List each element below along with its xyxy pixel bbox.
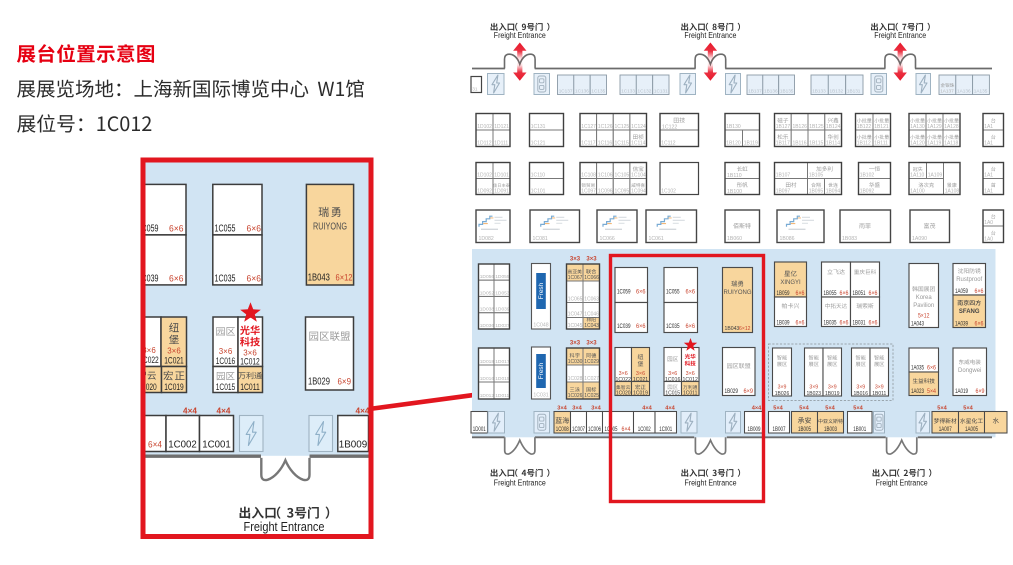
svg-text:1C136: 1C136 [575,88,589,93]
svg-text:1C021: 1C021 [164,355,184,366]
svg-text:1C101: 1C101 [531,188,546,194]
svg-text:1B121: 1B121 [874,124,889,130]
svg-text:1B116: 1B116 [792,140,806,146]
svg-text:5×4: 5×4 [825,406,835,412]
svg-text:1C002: 1C002 [168,439,197,451]
svg-text:6×6: 6×6 [169,274,184,284]
svg-text:1B026: 1B026 [775,391,790,397]
svg-text:1B111: 1B111 [874,140,888,146]
svg-text:31: 31 [472,86,478,92]
svg-text:1B132: 1B132 [830,88,844,93]
svg-text:1B003: 1B003 [824,426,837,433]
svg-text:1A007: 1A007 [939,426,952,433]
svg-text:1D082: 1D082 [479,236,494,242]
svg-text:1C127: 1C127 [581,124,596,130]
svg-text:1D053: 1D053 [495,290,510,296]
svg-text:5×4: 5×4 [963,406,973,412]
svg-text:1B136: 1B136 [764,88,778,93]
svg-text:3×3: 3×3 [586,257,597,263]
svg-text:6×6: 6×6 [975,322,985,328]
svg-text:Freight Entrance: Freight Entrance [244,520,325,534]
svg-text:1C027: 1C027 [584,376,599,382]
svg-text:1C121: 1C121 [531,140,546,146]
svg-text:6×6: 6×6 [869,291,879,297]
svg-text:1C015: 1C015 [216,381,236,392]
svg-text:3×9: 3×9 [778,385,787,391]
svg-text:1A039: 1A039 [955,321,968,328]
svg-text:1C102: 1C102 [661,188,676,194]
svg-text:Korea: Korea [916,295,933,301]
svg-text:6×9: 6×9 [976,389,986,395]
svg-text:1C002: 1C002 [638,426,651,433]
svg-text:3×4: 3×4 [557,406,567,412]
svg-text:1B055: 1B055 [824,290,837,297]
svg-text:1B124: 1B124 [826,124,841,130]
svg-text:6×6: 6×6 [975,289,985,295]
svg-text:6×6: 6×6 [169,224,184,234]
svg-text:1B016: 1B016 [854,391,869,397]
svg-text:1B137: 1B137 [748,88,762,93]
svg-text:1C006: 1C006 [588,426,601,433]
svg-text:1D001: 1D001 [473,426,486,433]
svg-text:Dongwei: Dongwei [958,368,981,374]
svg-text:1D037: 1D037 [495,323,510,329]
svg-text:1B043: 1B043 [308,273,330,284]
svg-text:1B112: 1B112 [857,140,871,146]
svg-text:1D121: 1D121 [494,124,509,130]
svg-text:1B105: 1B105 [809,172,824,178]
svg-text:1C125: 1C125 [614,124,629,130]
svg-text:1C067: 1C067 [568,275,583,281]
svg-text:1C115: 1C115 [614,140,629,146]
svg-text:1B005: 1B005 [798,426,811,433]
svg-text:6×12: 6×12 [739,326,751,332]
svg-text:1C104: 1C104 [631,172,646,178]
svg-text:1B086: 1B086 [780,236,795,242]
svg-text:RUIYONG: RUIYONG [723,290,751,296]
svg-text:1B029: 1B029 [308,377,330,388]
svg-text:1C047: 1C047 [568,311,583,317]
svg-text:6×9: 6×9 [744,388,754,395]
svg-text:5×4: 5×4 [937,406,947,412]
svg-text:RUIYONG: RUIYONG [313,222,347,233]
svg-text:1D052: 1D052 [480,290,495,296]
svg-text:1A129: 1A129 [927,124,942,130]
svg-text:Pavilion: Pavilion [913,303,934,309]
svg-text:6×6: 6×6 [869,321,879,327]
svg-text:Freight Entrance: Freight Entrance [684,31,736,40]
svg-text:1C132: 1C132 [638,88,652,93]
svg-text:1B115: 1B115 [809,140,823,146]
svg-text:1D055: 1D055 [495,274,510,280]
svg-text:3×4: 3×4 [572,406,582,412]
svg-text:1A128: 1A128 [944,124,959,130]
svg-text:1B083: 1B083 [842,236,857,242]
svg-text:1B019: 1B019 [825,391,840,397]
svg-text:1C031: 1C031 [533,393,548,399]
svg-text:1C133: 1C133 [621,88,635,93]
svg-text:1C011: 1C011 [240,381,260,392]
svg-text:6×6: 6×6 [686,323,696,330]
svg-text:1D092: 1D092 [477,188,492,194]
svg-text:4×4: 4×4 [356,407,370,416]
svg-text:6×6: 6×6 [840,321,850,327]
svg-text:1C112: 1C112 [661,140,676,146]
svg-text:1D112: 1D112 [477,140,492,146]
svg-text:1D012: 1D012 [480,393,495,399]
svg-text:5×4: 5×4 [799,406,809,412]
svg-text:1A1: 1A1 [984,124,993,130]
svg-text:1C019: 1C019 [633,391,648,397]
svg-text:1B117: 1B117 [776,140,790,146]
svg-text:Fresh: Fresh [538,282,545,299]
svg-text:1C001: 1C001 [202,439,231,451]
svg-text:1B092: 1B092 [860,188,875,194]
svg-text:1B023: 1B023 [807,391,822,397]
svg-text:6×4: 6×4 [148,440,162,450]
svg-text:1C095: 1C095 [614,188,629,194]
svg-text:1B131: 1B131 [847,88,861,93]
svg-text:1B102: 1B102 [860,172,875,178]
svg-text:1B009: 1B009 [748,426,761,433]
svg-text:1B120: 1B120 [726,140,741,146]
svg-text:1D056: 1D056 [480,274,495,280]
svg-text:1C081: 1C081 [533,236,548,242]
svg-text:1C028: 1C028 [568,376,583,382]
svg-text:1A1: 1A1 [984,188,993,194]
svg-text:1C126: 1C126 [598,124,613,130]
svg-text:1C135: 1C135 [591,88,605,93]
svg-text:1B059: 1B059 [777,290,790,297]
svg-text:1B001: 1B001 [853,426,866,433]
svg-text:1A005: 1A005 [965,426,978,433]
svg-text:6×6: 6×6 [796,321,806,327]
svg-text:4×4: 4×4 [752,406,762,412]
svg-text:1A136: 1A136 [957,88,971,93]
svg-text:1C137: 1C137 [559,88,573,93]
svg-text:Freight Entrance: Freight Entrance [685,479,737,488]
svg-text:1D039: 1D039 [495,307,510,313]
svg-text:5×12: 5×12 [918,314,930,320]
svg-text:1B122: 1B122 [857,124,872,130]
svg-text:1A090: 1A090 [912,236,927,242]
svg-text:1B126: 1B126 [792,124,807,130]
svg-text:3×3: 3×3 [570,341,581,347]
svg-text:1B011: 1B011 [872,391,886,397]
svg-text:1C015: 1C015 [665,391,680,397]
svg-text:1B130: 1B130 [726,124,741,130]
svg-text:1C055: 1C055 [215,224,236,235]
svg-text:6×6: 6×6 [686,289,696,296]
svg-text:1C026: 1C026 [568,393,583,399]
svg-text:1B043: 1B043 [725,326,740,332]
svg-text:1D036: 1D036 [480,323,495,329]
svg-text:1C012: 1C012 [240,356,260,367]
svg-text:1C097: 1C097 [581,188,596,194]
svg-text:4×4: 4×4 [183,407,197,416]
svg-text:1A1: 1A1 [984,172,993,178]
svg-text:1C061: 1C061 [649,236,664,242]
svg-text:1D015: 1D015 [495,376,510,382]
svg-text:1B097: 1B097 [776,188,791,194]
svg-text:1A023: 1A023 [911,388,924,395]
svg-text:Rustproof: Rustproof [956,277,982,283]
svg-text:1C131: 1C131 [654,88,668,93]
svg-text:1D018: 1D018 [480,359,495,365]
svg-text:1B060: 1B060 [727,236,742,242]
svg-text:1B031: 1B031 [853,320,866,327]
svg-text:1C065: 1C065 [568,296,583,302]
svg-text:1A137: 1A137 [940,88,954,93]
svg-text:1B094: 1B094 [826,188,841,194]
svg-text:1C131: 1C131 [531,124,546,130]
svg-text:1C029: 1C029 [584,359,599,365]
svg-text:1D101: 1D101 [494,172,509,178]
svg-text:1C008: 1C008 [556,426,569,433]
svg-text:3×9: 3×9 [875,385,884,391]
svg-text:1C055: 1C055 [666,289,680,296]
svg-text:1A135: 1A135 [974,88,988,93]
svg-text:1C066: 1C066 [584,275,599,281]
svg-text:1C001: 1C001 [659,426,672,433]
svg-text:1C110: 1C110 [531,172,546,178]
svg-text:1A059: 1A059 [955,288,968,295]
svg-text:1A035: 1A035 [911,365,924,372]
svg-text:1C030: 1C030 [568,359,583,365]
svg-text:6×6: 6×6 [247,274,262,284]
svg-text:6×6: 6×6 [840,291,850,297]
svg-text:4×4: 4×4 [217,407,231,416]
svg-text:1C106: 1C106 [598,172,613,178]
svg-text:1C096: 1C096 [598,188,613,194]
svg-text:1C035: 1C035 [215,274,236,285]
svg-text:SFANG: SFANG [959,309,980,315]
svg-text:1A118: 1A118 [944,140,958,146]
svg-text:1A110: 1A110 [910,172,924,178]
svg-text:1C025: 1C025 [584,393,599,399]
svg-text:1C124: 1C124 [631,124,646,130]
svg-text:1D011: 1D011 [495,393,509,399]
svg-text:XINGYI: XINGYI [780,280,801,286]
svg-text:3×4: 3×4 [591,406,601,412]
svg-text:Freight Entrance: Freight Entrance [874,31,926,40]
svg-text:1C043: 1C043 [584,323,599,329]
svg-text:1A043: 1A043 [911,321,924,328]
svg-text:3×9: 3×9 [809,385,818,391]
svg-text:3×3: 3×3 [586,341,597,347]
svg-text:1A0: 1A0 [984,220,993,226]
svg-text:1B035: 1B035 [824,320,837,327]
svg-text:1B127: 1B127 [776,124,791,130]
svg-text:3×9: 3×9 [856,385,865,391]
svg-text:4×4: 4×4 [642,406,652,412]
svg-text:1C108: 1C108 [581,172,596,178]
svg-text:5×4: 5×4 [927,389,937,395]
svg-text:1B125: 1B125 [809,124,824,130]
svg-text:1A0: 1A0 [984,236,993,242]
svg-text:Freight Entrance: Freight Entrance [876,479,928,488]
svg-text:1A019: 1A019 [955,388,968,395]
svg-text:3×9: 3×9 [828,385,837,391]
svg-text:6×9: 6×9 [338,377,352,387]
svg-text:1B009: 1B009 [339,439,368,451]
svg-text:1C019: 1C019 [164,381,184,392]
svg-text:1C116: 1C116 [598,140,613,146]
svg-text:1A109: 1A109 [928,172,943,178]
svg-text:1C007: 1C007 [572,426,585,433]
svg-text:1C035: 1C035 [666,323,680,330]
svg-text:1C114: 1C114 [631,140,646,146]
svg-text:6×6: 6×6 [927,366,937,372]
svg-text:6×6: 6×6 [247,224,262,234]
svg-text:1B135: 1B135 [780,88,794,93]
svg-text:Fresh: Fresh [538,362,545,379]
svg-text:1D038: 1D038 [480,307,495,313]
svg-text:Freight Entrance: Freight Entrance [494,479,546,488]
svg-text:1C117: 1C117 [581,140,596,146]
svg-text:1B107: 1B107 [776,172,791,178]
svg-text:1A119: 1A119 [927,140,941,146]
svg-text:Freight Entrance: Freight Entrance [494,31,546,40]
svg-text:5×4: 5×4 [773,406,783,412]
svg-text:1D091: 1D091 [494,188,509,194]
svg-text:1C059: 1C059 [617,289,631,296]
svg-text:1A120: 1A120 [910,140,925,146]
svg-text:1C105: 1C105 [614,172,629,178]
svg-text:6×6: 6×6 [796,291,806,297]
svg-text:1B007: 1B007 [773,426,786,433]
svg-text:1B114: 1B114 [826,140,840,146]
svg-text:5×4: 5×4 [853,406,863,412]
svg-text:1D016: 1D016 [480,376,495,382]
svg-text:1B095: 1B095 [809,188,824,194]
svg-text:6×4: 6×4 [622,426,631,433]
svg-text:1C039: 1C039 [617,323,631,330]
svg-text:1D017: 1D017 [495,359,510,365]
svg-text:6×6: 6×6 [636,323,646,330]
svg-text:1D102: 1D102 [477,172,492,178]
svg-text:1B029: 1B029 [725,388,739,395]
svg-text:1D111: 1D111 [494,140,508,146]
svg-text:1C066: 1C066 [600,236,615,242]
svg-text:1B039: 1B039 [777,320,790,327]
svg-text:1C011: 1C011 [683,391,698,397]
svg-text:1B133: 1B133 [812,88,826,93]
svg-text:1C016: 1C016 [216,355,236,366]
svg-text:3×3: 3×3 [570,257,581,263]
svg-text:1A100: 1A100 [910,188,925,194]
svg-text:1C048: 1C048 [533,323,548,329]
svg-text:1A130: 1A130 [910,124,925,130]
svg-text:1A1: 1A1 [984,140,993,146]
svg-text:1A108: 1A108 [945,188,960,194]
svg-text:1C094: 1C094 [631,188,646,194]
svg-text:1B119: 1B119 [744,140,758,146]
svg-text:1C046: 1C046 [584,311,599,317]
svg-text:1C020: 1C020 [616,391,631,397]
svg-text:4×4: 4×4 [665,406,675,412]
svg-text:1D102: 1D102 [477,124,492,130]
svg-text:6×6: 6×6 [636,289,646,296]
svg-text:1C045: 1C045 [568,323,583,329]
svg-text:1B051: 1B051 [853,290,866,297]
svg-text:1C063: 1C063 [584,296,599,302]
svg-text:6×12: 6×12 [336,273,353,283]
